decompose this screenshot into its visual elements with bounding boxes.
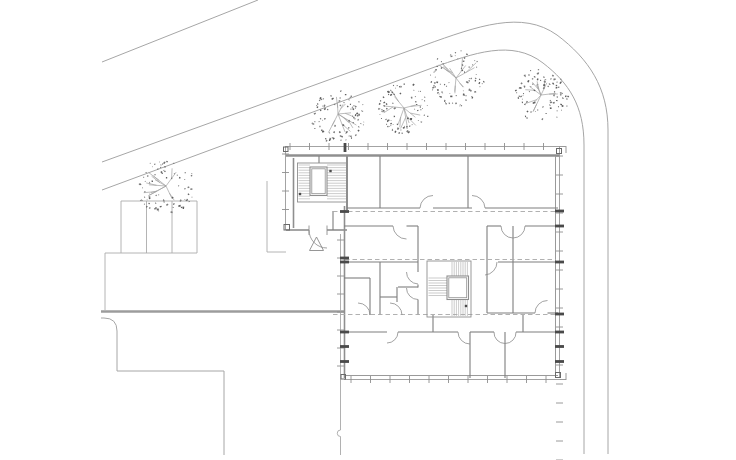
tree-foliage-dot xyxy=(358,101,360,102)
tree-foliage-dot xyxy=(387,126,389,127)
tree-foliage-dot xyxy=(383,110,385,111)
tree-foliage-dot xyxy=(437,66,438,67)
tree-foliage-dot xyxy=(383,96,385,98)
tree-foliage-dot xyxy=(528,74,529,76)
tree-foliage-dot xyxy=(149,207,151,209)
tree-foliage-dot xyxy=(417,110,419,111)
tree-foliage-dot xyxy=(556,82,557,83)
tree-foliage-dot xyxy=(183,208,184,209)
tree-foliage-dot xyxy=(549,104,551,106)
tree-foliage-dot xyxy=(449,93,450,94)
tree-foliage-dot xyxy=(415,96,416,97)
tree-foliage-dot xyxy=(163,170,164,171)
tree-foliage-dot xyxy=(406,126,408,128)
tree-foliage-dot xyxy=(185,199,186,200)
tree-foliage-dot xyxy=(394,116,395,117)
junction-mark-east xyxy=(555,225,564,228)
tree-foliage-dot xyxy=(381,118,382,119)
door-swing-double-left xyxy=(501,226,513,238)
junction-mark-west xyxy=(340,345,349,348)
tree-foliage-dot xyxy=(474,91,476,93)
tree-foliage-dot xyxy=(549,83,551,85)
tree-foliage-dot xyxy=(549,100,551,102)
tree-foliage-dot xyxy=(450,56,452,58)
tree-foliage-dot xyxy=(343,102,344,103)
junction-mark-west xyxy=(340,261,349,264)
stair-core-central-landing-inner xyxy=(449,278,467,298)
tree-foliage-dot xyxy=(444,100,445,101)
tree-foliage-dot xyxy=(560,94,562,96)
tree-foliage-dot xyxy=(468,80,470,82)
door-swing xyxy=(407,288,419,300)
tree-foliage-dot xyxy=(554,91,556,93)
tree-foliage-dot xyxy=(558,87,560,88)
tree-foliage-dot xyxy=(404,84,405,85)
tree-foliage-dot xyxy=(562,97,564,99)
tree-foliage-dot xyxy=(474,80,476,82)
door-swing xyxy=(390,303,402,315)
tree-foliage-dot xyxy=(400,86,402,88)
junction-mark-east xyxy=(555,331,564,334)
tree-foliage-dot xyxy=(518,95,520,97)
tree-foliage-dot xyxy=(439,94,440,95)
tree-foliage-dot xyxy=(565,95,567,97)
tree-foliage-dot xyxy=(142,187,143,188)
tree-foliage-dot xyxy=(470,90,472,92)
tree-foliage-dot xyxy=(546,113,547,114)
tree-foliage-dot xyxy=(379,103,381,105)
tree-foliage-dot xyxy=(178,206,179,207)
tree-foliage-dot xyxy=(560,104,562,106)
junction-mark-east xyxy=(555,210,564,213)
tree-foliage-dot xyxy=(320,118,322,119)
tree-foliage-dot xyxy=(465,95,466,96)
tree-foliage-dot xyxy=(399,93,401,95)
tree-foliage-dot xyxy=(526,117,527,119)
tree-foliage-dot xyxy=(400,129,401,130)
junction-mark-west xyxy=(340,210,349,213)
tree-foliage-dot xyxy=(383,102,385,104)
tree-foliage-dot xyxy=(407,117,409,119)
tree-foliage-dot xyxy=(383,105,385,107)
court-edge xyxy=(267,181,286,252)
junction-mark-west xyxy=(340,257,349,260)
tree-foliage-dot xyxy=(566,105,567,106)
tree-foliage-dot xyxy=(432,87,434,89)
tree-foliage-dot xyxy=(522,99,523,100)
tree-foliage-dot xyxy=(399,86,401,88)
tree-foliage-dot xyxy=(327,109,329,111)
tree-foliage-dot xyxy=(516,92,517,93)
tree-foliage-dot xyxy=(416,104,417,105)
tree-foliage-dot xyxy=(333,131,335,133)
tree-foliage-dot xyxy=(520,87,522,89)
tree-foliage-dot xyxy=(350,104,351,105)
junction-mark-east xyxy=(555,360,564,363)
tree-foliage-dot xyxy=(430,81,432,83)
tree-foliage-dot xyxy=(463,60,465,62)
tree-foliage-dot xyxy=(529,91,530,92)
tree-foliage-dot xyxy=(160,164,161,165)
tree-foliage-dot xyxy=(543,76,545,78)
tree-foliage-dot xyxy=(360,123,361,124)
tree-foliage-dot xyxy=(393,85,394,86)
tree-foliage-dot xyxy=(362,111,363,112)
tree-foliage-dot xyxy=(483,81,485,83)
tree-foliage-dot xyxy=(437,92,439,94)
door-swing xyxy=(420,196,433,209)
tree-foliage-dot xyxy=(424,97,425,98)
junction-mark-east xyxy=(555,313,564,316)
tree-foliage-dot xyxy=(340,139,341,141)
junction-mark-east xyxy=(555,261,564,264)
junction-mark-west xyxy=(340,331,349,334)
tree-foliage-dot xyxy=(362,104,363,105)
tree-foliage-dot xyxy=(166,161,168,163)
stair-annex-landing-inner xyxy=(312,169,325,194)
tree-foliage-dot xyxy=(192,197,193,198)
tree-foliage-dot xyxy=(154,174,156,176)
tree-foliage-dot xyxy=(162,163,163,165)
tree-foliage-dot xyxy=(553,102,555,104)
tree-foliage-dot xyxy=(352,107,354,108)
door-swing xyxy=(387,332,398,343)
tree-foliage-dot xyxy=(545,79,547,80)
tree-foliage-dot xyxy=(348,127,350,129)
tree-foliage-dot xyxy=(525,115,526,117)
tree-foliage-dot xyxy=(390,123,392,125)
tree-foliage-dot xyxy=(446,86,447,88)
tree-foliage-dot xyxy=(566,98,568,100)
tree-foliage-dot xyxy=(395,88,396,89)
tree-foliage-dot xyxy=(181,206,183,208)
tree-foliage-dot xyxy=(157,169,158,171)
tree-foliage-dot xyxy=(550,101,552,103)
tree-foliage-dot xyxy=(152,166,153,167)
tree-foliage-dot xyxy=(424,100,425,101)
tree-foliage-dot xyxy=(390,94,393,96)
tree-foliage-dot xyxy=(322,106,323,107)
tree-foliage-dot xyxy=(411,97,413,99)
road-edge-outer-curve xyxy=(102,22,608,454)
tree-foliage-dot xyxy=(474,60,475,61)
tree-foliage-dot xyxy=(155,195,157,197)
tree-foliage-dot xyxy=(466,53,468,55)
tree-foliage-dot xyxy=(558,106,559,107)
door-swing-double-right xyxy=(505,332,516,344)
tree-foliage-dot xyxy=(388,94,389,96)
tree-foliage-dot xyxy=(461,51,462,52)
tree-foliage-dot xyxy=(436,81,438,83)
tree-foliage-dot xyxy=(470,78,472,80)
tree-foliage-dot xyxy=(325,138,326,140)
tree-foliage-dot xyxy=(159,162,160,163)
tree-foliage-dot xyxy=(381,111,382,112)
stair-core-central-marker xyxy=(465,305,467,307)
tree-foliage-dot xyxy=(556,96,558,98)
tree-foliage-dot xyxy=(351,138,352,139)
tree-foliage-dot xyxy=(392,103,393,105)
tree-foliage-dot xyxy=(152,180,154,182)
tree-foliage-dot xyxy=(460,104,461,105)
tree-foliage-dot xyxy=(149,197,151,199)
tree-foliage-dot xyxy=(363,124,364,125)
tree-foliage-dot xyxy=(148,203,150,205)
tree-foliage-dot xyxy=(180,199,182,202)
tree-foliage-dot xyxy=(520,96,522,98)
tree-foliage-dot xyxy=(314,128,315,129)
junction-mark-west xyxy=(340,360,349,363)
tree-foliage-dot xyxy=(448,102,450,104)
tree-foliage-dot xyxy=(351,137,352,138)
tree-foliage-dot xyxy=(380,100,381,102)
tree-foliage-dot xyxy=(522,102,523,104)
tree-foliage-dot xyxy=(522,95,523,96)
tree-foliage-dot xyxy=(461,105,462,106)
tree-foliage-dot xyxy=(472,64,473,65)
tree-foliage-dot xyxy=(412,124,413,125)
tree-foliage-dot xyxy=(353,105,354,106)
tree-foliage-dot xyxy=(542,106,544,108)
tree-foliage-dot xyxy=(464,58,465,59)
west-site-boundary xyxy=(337,234,340,455)
tree-foliage-dot xyxy=(164,202,165,203)
tree-foliage-dot xyxy=(469,78,470,79)
tree-foliage-dot xyxy=(534,76,536,78)
tree-foliage-dot xyxy=(386,103,388,105)
tree-foliage-dot xyxy=(319,100,321,102)
tree-foliage-dot xyxy=(163,162,164,164)
tree-foliage-dot xyxy=(390,90,392,92)
tree-foliage-dot xyxy=(461,68,463,70)
tree-foliage-dot xyxy=(418,120,419,121)
tree-foliage-dot xyxy=(537,110,538,111)
tree-foliage-dot xyxy=(479,79,481,81)
tree-foliage-dot xyxy=(420,109,421,110)
tree-foliage-dot xyxy=(155,202,156,204)
tree-foliage-dot xyxy=(556,110,557,111)
stair-annex-landing xyxy=(310,167,327,196)
tree-foliage-dot xyxy=(178,185,179,186)
tree-foliage-dot xyxy=(420,121,422,123)
tree-foliage-dot xyxy=(177,174,178,175)
stair-annex-marker xyxy=(299,193,301,195)
tree-foliage-dot xyxy=(316,105,317,106)
tree-foliage-dot xyxy=(355,134,357,136)
door-swing-double-right xyxy=(513,226,525,238)
tree-foliage-dot xyxy=(567,95,569,97)
tree-foliage-dot xyxy=(530,86,531,87)
tree-foliage-dot xyxy=(355,108,356,109)
tree-foliage-dot xyxy=(353,122,354,123)
tree-foliage-dot xyxy=(518,97,520,99)
tree-foliage-dot xyxy=(520,82,522,84)
tree-foliage-dot xyxy=(537,78,539,80)
tree-foliage-dot xyxy=(158,195,159,196)
tree-foliage-dot xyxy=(406,128,407,129)
tree-foliage-dot xyxy=(452,103,453,104)
tree-foliage-dot xyxy=(146,172,147,173)
tree-foliage-dot xyxy=(468,66,470,67)
tree-foliage-dot xyxy=(160,206,162,208)
tree-foliage-dot xyxy=(433,72,434,73)
corner-marker-ne xyxy=(557,149,562,154)
tree-foliage-dot xyxy=(386,124,387,125)
tree xyxy=(311,90,364,142)
tree-foliage-dot xyxy=(381,109,383,111)
tree-foliage-dot xyxy=(347,106,349,108)
tree-foliage-dot xyxy=(390,125,391,126)
tree-foliage-dot xyxy=(523,93,524,94)
tree-foliage-dot xyxy=(173,203,175,205)
tree-foliage-dot xyxy=(463,94,464,96)
tree-foliage-dot xyxy=(349,135,350,136)
tree-foliage-dot xyxy=(556,85,558,86)
tree-foliage-dot xyxy=(465,99,467,101)
tree-foliage-dot xyxy=(145,181,146,182)
tree-foliage-dot xyxy=(413,90,414,91)
tree-foliage-dot xyxy=(524,87,525,88)
door-swing xyxy=(535,301,548,314)
tree-foliage-dot xyxy=(326,140,328,142)
tree-foliage-dot xyxy=(533,102,534,104)
tree-foliage-dot xyxy=(339,131,341,133)
tree-foliage-dot xyxy=(356,112,358,114)
stair-core-central-landing xyxy=(447,276,469,300)
tree-foliage-dot xyxy=(553,78,556,80)
tree-foliage-dot xyxy=(357,115,359,117)
tree-foliage-dot xyxy=(455,52,457,54)
tree-foliage-dot xyxy=(345,139,346,140)
tree-foliage-dot xyxy=(541,118,543,120)
tree-foliage-dot xyxy=(144,196,145,198)
tree-foliage-dot xyxy=(532,78,534,80)
tree-foliage-dot xyxy=(427,116,428,117)
tree-foliage-dot xyxy=(184,188,186,190)
tree-foliage-dot xyxy=(379,114,380,115)
tree-foliage-dot xyxy=(437,58,439,60)
tree-foliage-dot xyxy=(550,107,552,109)
tree-foliage-dot xyxy=(432,89,433,90)
tree-foliage-dot xyxy=(355,105,357,107)
tree-foliage-dot xyxy=(187,186,189,188)
tree xyxy=(515,69,569,120)
tree-foliage-dot xyxy=(316,106,318,108)
tree-foliage-dot xyxy=(147,200,148,201)
tree-foliage-dot xyxy=(479,86,480,87)
tree-foliage-dot xyxy=(412,84,415,87)
tree-foliage-dot xyxy=(352,115,353,116)
tree-foliage-dot xyxy=(527,80,529,83)
tree-foliage-dot xyxy=(331,98,334,101)
tree-foliage-dot xyxy=(364,122,365,123)
tree-branches xyxy=(384,92,422,128)
tree-foliage-dot xyxy=(440,84,441,86)
tree-foliage-dot xyxy=(329,138,331,140)
tree-foliage-dot xyxy=(422,99,423,100)
tree-foliage-dot xyxy=(515,90,517,92)
tree-foliage-dot xyxy=(427,105,428,106)
tree-foliage-dot xyxy=(463,90,464,91)
tree-foliage-dot xyxy=(334,125,336,127)
door-swing xyxy=(472,196,485,209)
tree-foliage-dot xyxy=(404,126,405,127)
door-swing xyxy=(358,303,370,315)
road-edge-upper xyxy=(102,0,258,62)
curb-line xyxy=(101,318,224,455)
tree-foliage-dot xyxy=(441,91,442,92)
tree-foliage-dot xyxy=(158,210,159,211)
tree-foliage-dot xyxy=(441,61,442,62)
tree-foliage-dot xyxy=(456,95,457,96)
tree-foliage-dot xyxy=(476,61,477,62)
tree-foliage-dot xyxy=(547,86,549,88)
tree-foliage-dot xyxy=(340,90,342,92)
tree-foliage-dot xyxy=(435,69,437,71)
tree-foliage-dot xyxy=(157,209,159,210)
tree-foliage-dot xyxy=(339,97,341,99)
tree-foliage-dot xyxy=(422,108,423,109)
tree-foliage-dot xyxy=(147,175,149,177)
tree-foliage-dot xyxy=(559,81,562,84)
tree-foliage-dot xyxy=(361,110,362,111)
road-edge-inner-curve xyxy=(102,50,584,454)
tree xyxy=(378,84,429,135)
tree-foliage-dot xyxy=(430,74,431,75)
tree-foliage-dot xyxy=(323,98,324,99)
floor-plan-drawing xyxy=(0,0,736,460)
tree-foliage-dot xyxy=(389,126,390,127)
tree-foliage-dot xyxy=(322,120,323,121)
tree-foliage-dot xyxy=(414,109,415,110)
tree-foliage-dot xyxy=(459,105,460,106)
tree-branches xyxy=(328,97,356,133)
tree-foliage-dot xyxy=(556,116,557,117)
tree-foliage-dot xyxy=(450,54,452,55)
tree-foliage-dot xyxy=(317,103,319,105)
tree-foliage-dot xyxy=(166,204,169,206)
tree-foliage-dot xyxy=(154,163,156,165)
tree-foliage-dot xyxy=(401,133,402,134)
tree-foliage-dot xyxy=(435,77,436,78)
tree-foliage-dot xyxy=(150,163,151,164)
tree-foliage-dot xyxy=(455,103,457,105)
tree-foliage-dot xyxy=(450,96,452,98)
tree-foliage-dot xyxy=(418,91,419,92)
tree-foliage-dot xyxy=(314,112,316,114)
tree-foliage-dot xyxy=(550,78,552,79)
corner-bracket-ne xyxy=(560,147,567,154)
tree-foliage-dot xyxy=(543,84,545,86)
tree-foliage-dot xyxy=(163,200,165,202)
door-swing xyxy=(393,226,407,239)
tree-foliage-dot xyxy=(552,75,554,77)
tree-foliage-dot xyxy=(191,173,192,174)
tree-foliage-dot xyxy=(345,94,347,95)
tree-foliage-dot xyxy=(160,167,161,168)
tree-foliage-dot xyxy=(393,124,394,125)
tree-foliage-dot xyxy=(351,95,352,97)
tree-foliage-dot xyxy=(324,118,326,120)
tree-foliage-dot xyxy=(448,82,449,83)
tree-foliage-dot xyxy=(350,135,352,137)
stair-core-central-treads xyxy=(429,262,468,316)
tree-foliage-dot xyxy=(455,55,456,56)
tree-foliage-dot xyxy=(398,132,400,134)
tree-foliage-dot xyxy=(415,101,417,103)
tree-foliage-dot xyxy=(318,121,319,122)
door-swing xyxy=(458,332,470,344)
